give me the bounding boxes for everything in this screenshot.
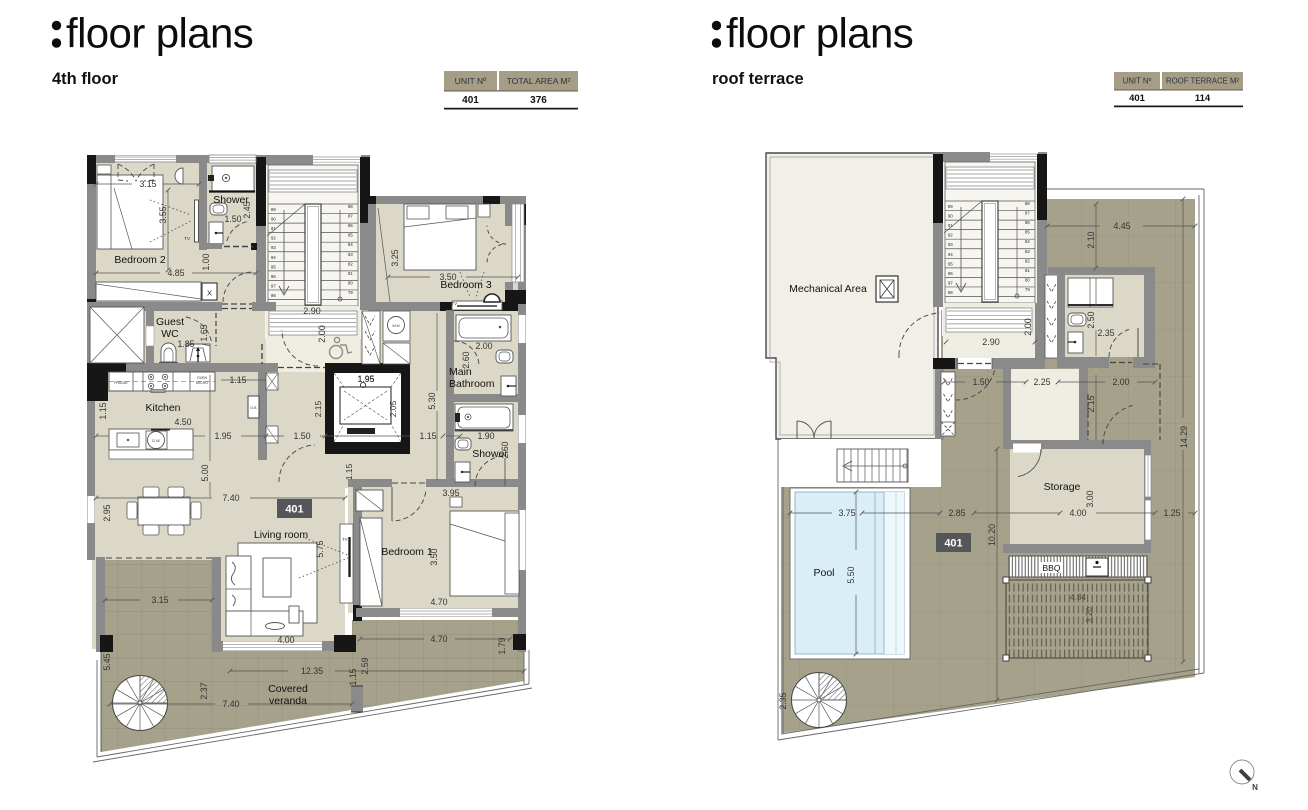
- svg-text:3.00: 3.00: [1085, 490, 1095, 507]
- svg-text:3.95: 3.95: [442, 488, 459, 498]
- svg-text:W.M: W.M: [392, 324, 399, 328]
- svg-text:114: 114: [1195, 93, 1211, 104]
- svg-text:4.84: 4.84: [1070, 593, 1086, 602]
- svg-text:veranda: veranda: [269, 695, 307, 707]
- svg-text:1.50: 1.50: [224, 214, 241, 224]
- svg-text:12.35: 12.35: [301, 666, 323, 676]
- svg-text:2.35: 2.35: [1097, 328, 1114, 338]
- svg-text:2.37: 2.37: [199, 682, 209, 699]
- svg-text:4.00: 4.00: [277, 635, 294, 645]
- svg-text:4.00: 4.00: [1069, 508, 1086, 518]
- svg-text:Living room: Living room: [254, 529, 309, 541]
- svg-text:2.15: 2.15: [1086, 395, 1096, 412]
- svg-text:TV: TV: [184, 236, 190, 241]
- svg-text:3.55: 3.55: [158, 206, 168, 223]
- svg-text:BBQ: BBQ: [1043, 563, 1061, 573]
- svg-text:2.95: 2.95: [102, 504, 112, 521]
- svg-text:4.50: 4.50: [174, 417, 191, 427]
- svg-text:1.15: 1.15: [229, 375, 246, 385]
- svg-text:10.20: 10.20: [987, 524, 997, 546]
- svg-text:FRIDGE: FRIDGE: [114, 381, 128, 385]
- svg-text:OVEN: OVEN: [197, 376, 208, 380]
- svg-text:1.25: 1.25: [1163, 508, 1180, 518]
- svg-text:376: 376: [530, 95, 547, 106]
- svg-text:7.40: 7.40: [222, 493, 239, 503]
- svg-text:2.15: 2.15: [313, 400, 323, 417]
- svg-text:4.70: 4.70: [430, 597, 447, 607]
- svg-text:2.90: 2.90: [303, 306, 321, 316]
- svg-text:4.45: 4.45: [1113, 221, 1130, 231]
- svg-text:Bedroom 1: Bedroom 1: [381, 546, 433, 558]
- svg-text:WC: WC: [161, 328, 179, 340]
- svg-text:5.30: 5.30: [427, 392, 437, 409]
- svg-text:14.29: 14.29: [1179, 426, 1189, 448]
- svg-text:Storage: Storage: [1044, 481, 1081, 493]
- svg-text:401: 401: [1129, 93, 1146, 104]
- svg-text:TV: TV: [452, 301, 458, 306]
- svg-text:401: 401: [285, 504, 303, 516]
- svg-text:Main: Main: [449, 366, 472, 378]
- svg-text:3.75: 3.75: [838, 508, 855, 518]
- svg-text:Bedroom 2: Bedroom 2: [114, 254, 166, 266]
- svg-text:7.40: 7.40: [222, 699, 239, 709]
- svg-text:roof terrace: roof terrace: [712, 70, 804, 88]
- svg-text:Pool: Pool: [813, 567, 834, 579]
- svg-text:3.25: 3.25: [390, 249, 400, 266]
- svg-text:D.W: D.W: [152, 439, 160, 443]
- svg-text:1.79: 1.79: [497, 637, 507, 654]
- svg-text:Bedroom 3: Bedroom 3: [440, 279, 492, 291]
- svg-text:1.95: 1.95: [214, 431, 231, 441]
- svg-text:5.00: 5.00: [200, 464, 210, 481]
- svg-text:3.15: 3.15: [151, 595, 168, 605]
- svg-text:ROOF TERRACE M²: ROOF TERRACE M²: [1166, 77, 1239, 86]
- svg-text:floor plans: floor plans: [726, 10, 913, 57]
- svg-text:floor plans: floor plans: [66, 10, 253, 57]
- svg-text:2.10: 2.10: [1086, 231, 1096, 248]
- svg-text:1.00: 1.00: [201, 253, 211, 270]
- svg-text:Shower: Shower: [472, 448, 508, 460]
- svg-text:4.85: 4.85: [167, 268, 184, 278]
- svg-text:401: 401: [944, 538, 962, 550]
- svg-text:MICRO: MICRO: [196, 381, 208, 385]
- svg-text:2.90: 2.90: [982, 337, 1000, 347]
- svg-text:3.15: 3.15: [139, 179, 156, 189]
- svg-text:Bathroom: Bathroom: [449, 378, 495, 390]
- svg-text:1.15: 1.15: [419, 431, 436, 441]
- svg-text:2.00: 2.00: [475, 341, 492, 351]
- svg-text:4th floor: 4th floor: [52, 70, 119, 88]
- svg-text:1.90: 1.90: [477, 431, 494, 441]
- svg-text:Shower: Shower: [213, 194, 249, 206]
- svg-text:1.50: 1.50: [972, 377, 989, 387]
- svg-text:Kitchen: Kitchen: [145, 402, 180, 414]
- svg-text:Mechanical Area: Mechanical Area: [789, 283, 867, 295]
- svg-text:2.85: 2.85: [948, 508, 965, 518]
- svg-text:Guest: Guest: [156, 316, 184, 328]
- svg-text:5.75: 5.75: [315, 540, 325, 557]
- svg-text:1.85: 1.85: [177, 339, 194, 349]
- svg-text:TV: TV: [342, 537, 348, 542]
- svg-text:5.50: 5.50: [846, 566, 856, 583]
- svg-text:2.59: 2.59: [360, 657, 370, 674]
- svg-text:2.00: 2.00: [1023, 318, 1033, 336]
- svg-text:2.00: 2.00: [317, 325, 327, 343]
- svg-text:3.20: 3.20: [1085, 607, 1094, 623]
- svg-text:1.15: 1.15: [98, 402, 108, 419]
- svg-text:TOTAL AREA M²: TOTAL AREA M²: [507, 76, 571, 86]
- svg-text:1.50: 1.50: [293, 431, 310, 441]
- svg-text:2.35: 2.35: [778, 692, 788, 709]
- svg-text:2.25: 2.25: [1033, 377, 1050, 387]
- svg-text:UNIT Nº: UNIT Nº: [1123, 77, 1152, 86]
- svg-text:1.95: 1.95: [357, 374, 374, 384]
- svg-text:1.65: 1.65: [199, 324, 209, 341]
- svg-text:401: 401: [462, 95, 479, 106]
- svg-text:4.70: 4.70: [430, 634, 447, 644]
- svg-text:1.15: 1.15: [344, 463, 354, 480]
- svg-text:N: N: [1252, 783, 1258, 792]
- svg-text:1.15: 1.15: [348, 668, 358, 685]
- svg-text:X: X: [207, 289, 212, 298]
- svg-text:2.50: 2.50: [1086, 311, 1096, 328]
- svg-text:2.00: 2.00: [1112, 377, 1129, 387]
- svg-text:5.45: 5.45: [102, 653, 112, 670]
- svg-text:2.05: 2.05: [388, 400, 398, 417]
- svg-text:D.B: D.B: [251, 406, 258, 410]
- svg-text:Covered: Covered: [268, 683, 308, 695]
- svg-text:UNIT Nº: UNIT Nº: [455, 76, 487, 86]
